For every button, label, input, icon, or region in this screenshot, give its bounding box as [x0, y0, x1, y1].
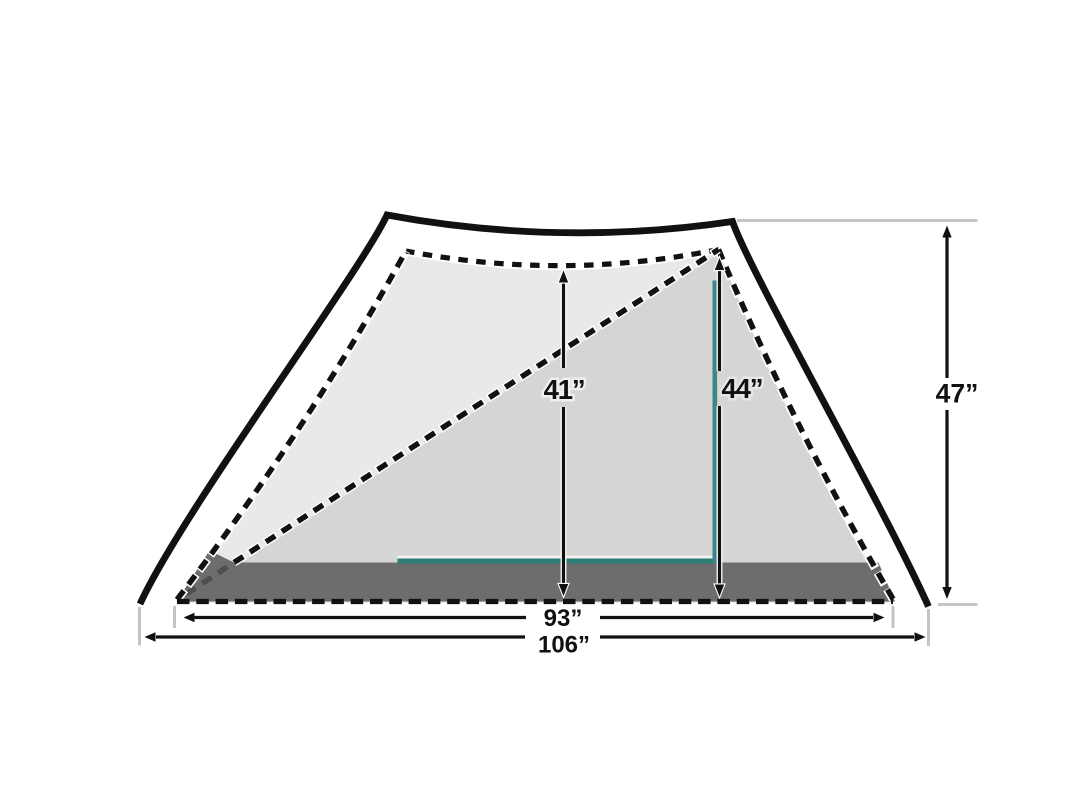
- svg-text:44”: 44”: [722, 373, 763, 404]
- svg-text:93”: 93”: [544, 605, 583, 632]
- svg-text:41”: 41”: [544, 374, 585, 405]
- svg-text:106”: 106”: [538, 632, 590, 659]
- svg-text:47”: 47”: [936, 379, 979, 409]
